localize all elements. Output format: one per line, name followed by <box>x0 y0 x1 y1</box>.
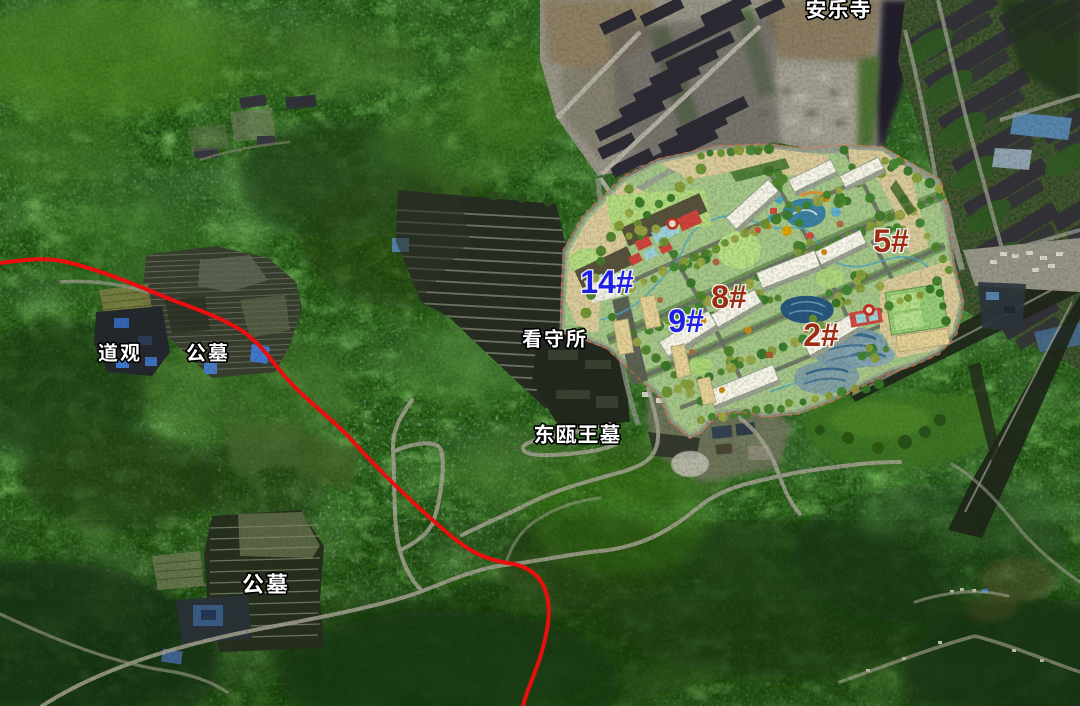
svg-text:8#: 8# <box>711 279 747 315</box>
svg-text:2#: 2# <box>803 317 839 353</box>
svg-text:9#: 9# <box>668 303 704 339</box>
svg-text:14#: 14# <box>580 264 634 300</box>
svg-text:5#: 5# <box>873 223 909 259</box>
